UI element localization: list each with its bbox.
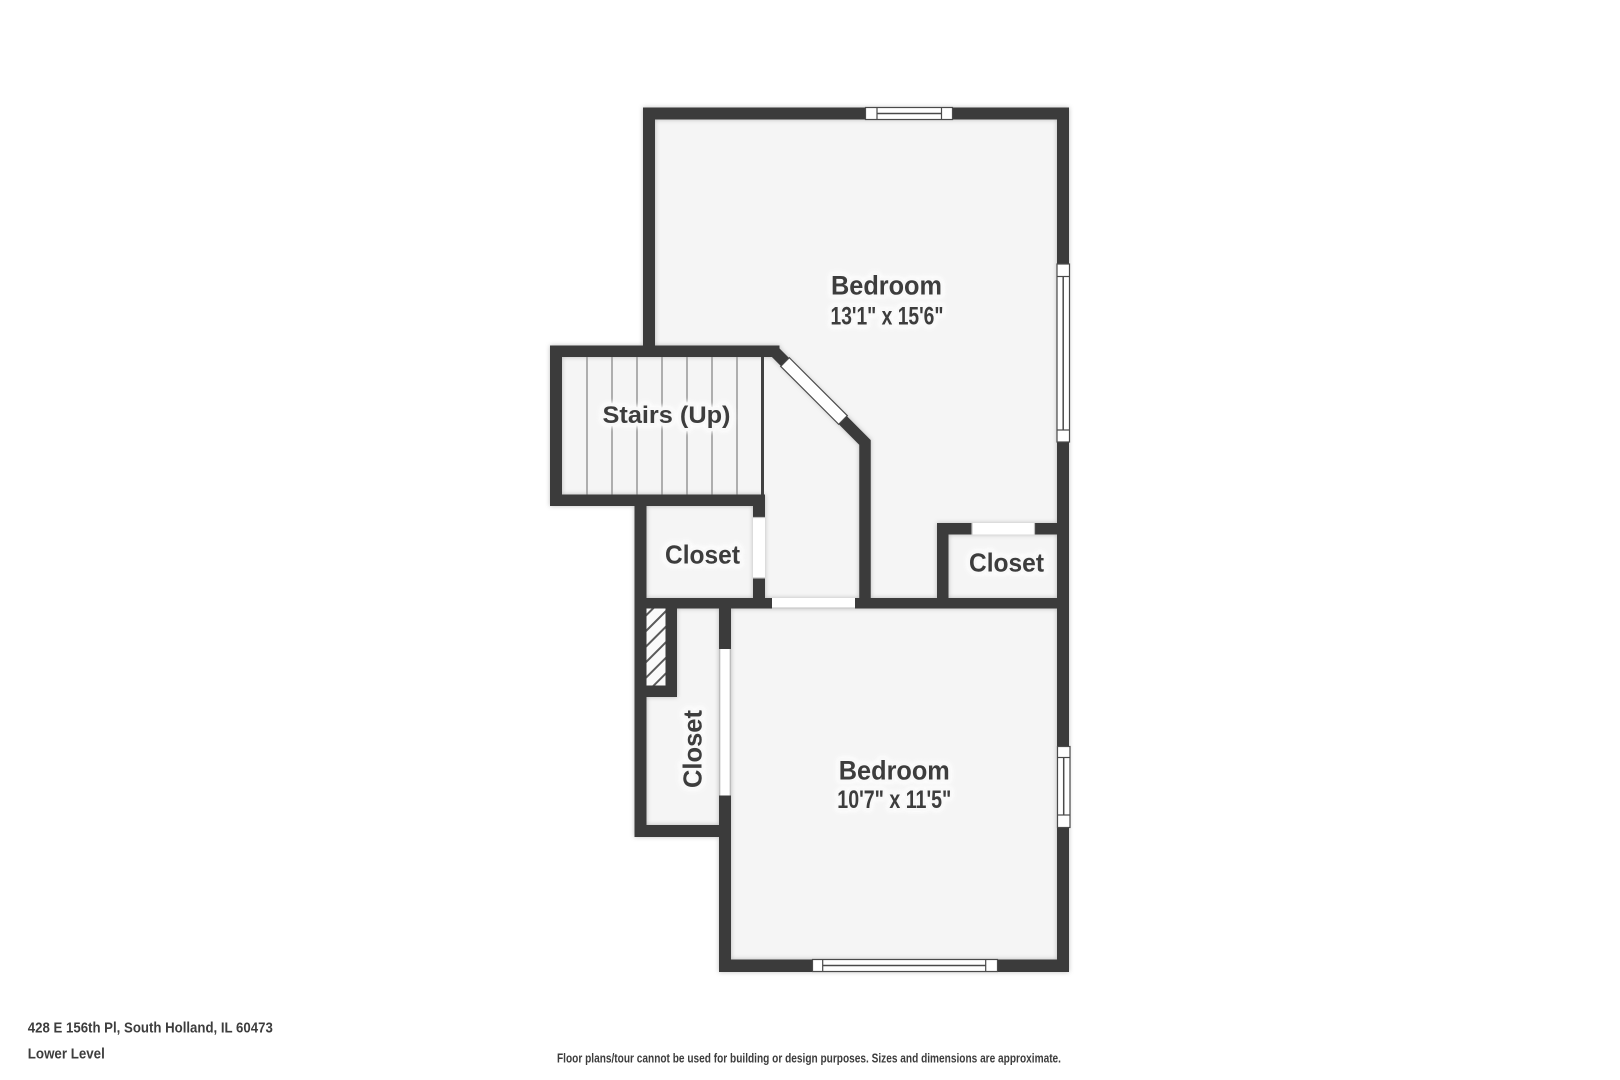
- svg-text:428 E 156th Pl, South Holland,: 428 E 156th Pl, South Holland, IL 60473: [28, 1019, 273, 1036]
- svg-text:13'1" x 15'6": 13'1" x 15'6": [831, 302, 944, 330]
- svg-text:Closet: Closet: [665, 540, 740, 570]
- svg-text:Closet: Closet: [678, 710, 708, 788]
- svg-text:Bedroom: Bedroom: [839, 756, 950, 786]
- svg-text:10'7" x 11'5": 10'7" x 11'5": [837, 786, 951, 814]
- svg-text:Bedroom: Bedroom: [831, 271, 942, 301]
- svg-text:Floor plans/tour cannot be use: Floor plans/tour cannot be used for buil…: [557, 1051, 1061, 1066]
- svg-text:Lower Level: Lower Level: [28, 1046, 105, 1063]
- svg-text:Stairs (Up): Stairs (Up): [603, 402, 731, 429]
- svg-text:Closet: Closet: [969, 548, 1044, 578]
